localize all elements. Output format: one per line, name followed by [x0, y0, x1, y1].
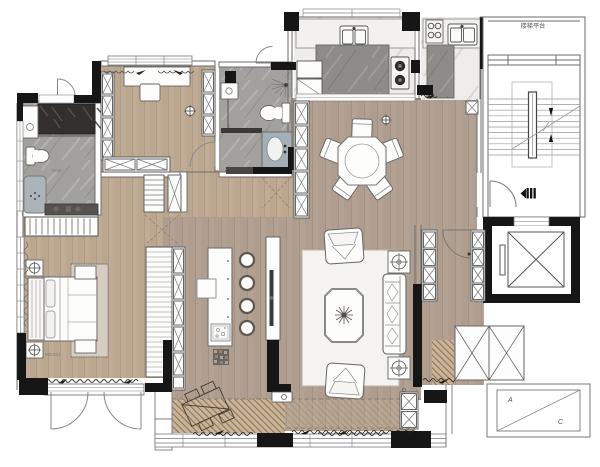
- svg-text:楼梯平台: 楼梯平台: [521, 22, 546, 30]
- svg-text:A: A: [507, 397, 513, 404]
- svg-text:MS:02J: MS:02J: [45, 352, 60, 357]
- svg-text:DM6: DM6: [52, 168, 62, 173]
